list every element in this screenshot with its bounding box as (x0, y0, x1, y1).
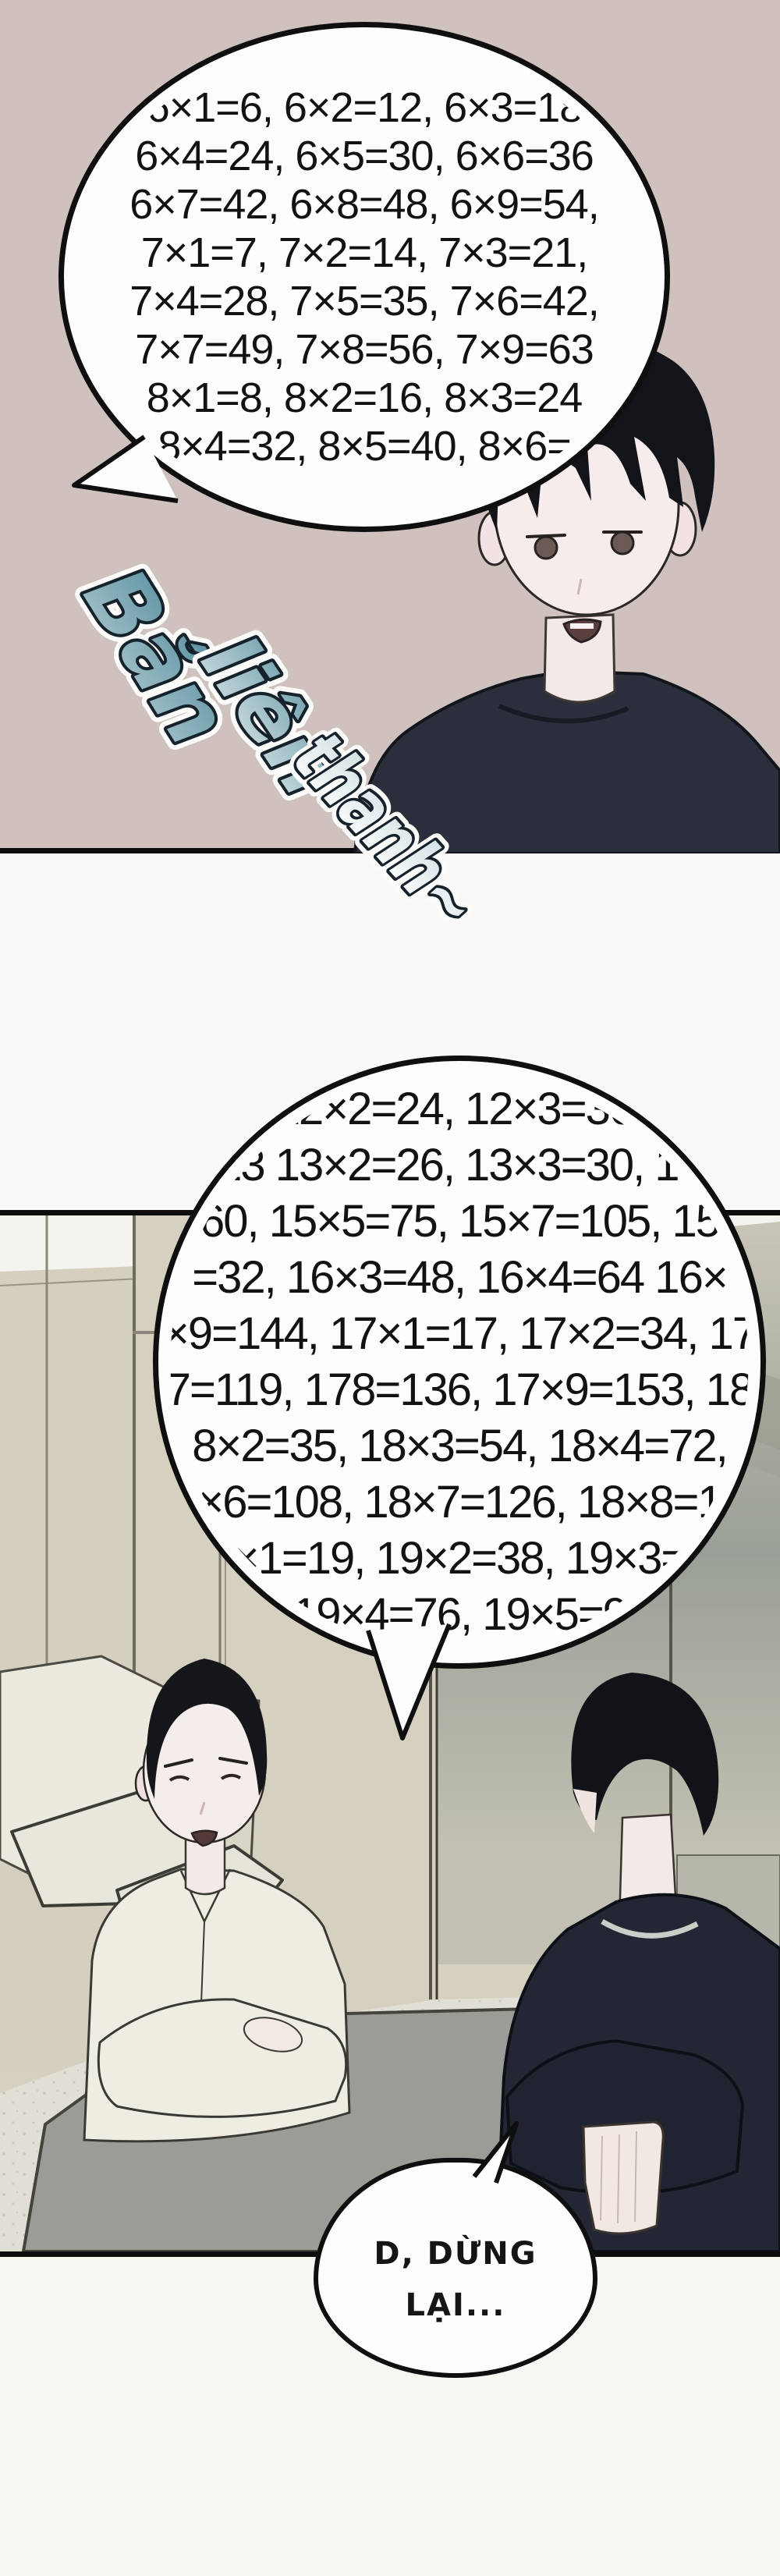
bubble3-text: D, DỪNG LẠI... (318, 2228, 593, 2331)
speech-bubble-multiplication-2: 12×2=24, 12×3=36, 13 13×2=26, 13×3=30, 1… (153, 1056, 766, 1669)
bubble2-line: =32, 16×3=48, 16×4=64 16× (192, 1250, 726, 1306)
bubble1-line: 6×4=24, 6×5=30, 6×6=36 (135, 132, 594, 180)
bubble2-tail (335, 1599, 491, 1755)
right-eye (612, 532, 633, 554)
comic-page: 6×1=6, 6×2=12, 6×3=18 6×4=24, 6×5=30, 6×… (0, 0, 780, 2576)
left-eye (535, 537, 557, 559)
bubble3-tail (452, 2099, 562, 2200)
bubble3-line: LẠI... (318, 2280, 593, 2331)
bubble2-line: ×6=108, 18×7=126, 18×8=1 (197, 1474, 721, 1531)
bubble2-line: 13 13×2=26, 13×3=30, 13 (217, 1137, 702, 1194)
bubble1-line: 7×7=49, 7×8=56, 7×9=63 (135, 325, 594, 374)
bubble1-line: 6×1=6, 6×2=12, 6×3=18 (147, 83, 583, 132)
bubble3-line: D, DỪNG (318, 2228, 593, 2280)
bubble2-text: 12×2=24, 12×3=36, 13 13×2=26, 13×3=30, 1… (158, 1061, 760, 1663)
bubble1-line: 7×1=7, 7×2=14, 7×3=21, (141, 229, 588, 277)
bubble2-line: ×9=144, 17×1=17, 17×2=34, 17 (163, 1306, 756, 1362)
bubble2-line: 8×2=35, 18×3=54, 18×4=72, (192, 1418, 726, 1474)
bubble2-line: ×1=19, 19×2=38, 19×3= (233, 1531, 686, 1587)
teeth (570, 623, 594, 629)
bubble2-line: 7=119, 178=136, 17×9=153, 18 (166, 1362, 753, 1418)
bubble1-line: 6×7=42, 6×8=48, 6×9=54, (129, 180, 599, 229)
bubble1-line: 7×4=28, 7×5=35, 7×6=42, (129, 277, 599, 325)
bubble2-line: 12×2=24, 12×3=36, (275, 1081, 643, 1137)
bubble1-tail (47, 406, 218, 530)
bubble1-line: 8×4=32, 8×5=40, 8×6= (158, 422, 571, 470)
hand (583, 2122, 663, 2234)
bubble2-line: 60, 15×5=75, 15×7=105, 15 (200, 1194, 719, 1250)
